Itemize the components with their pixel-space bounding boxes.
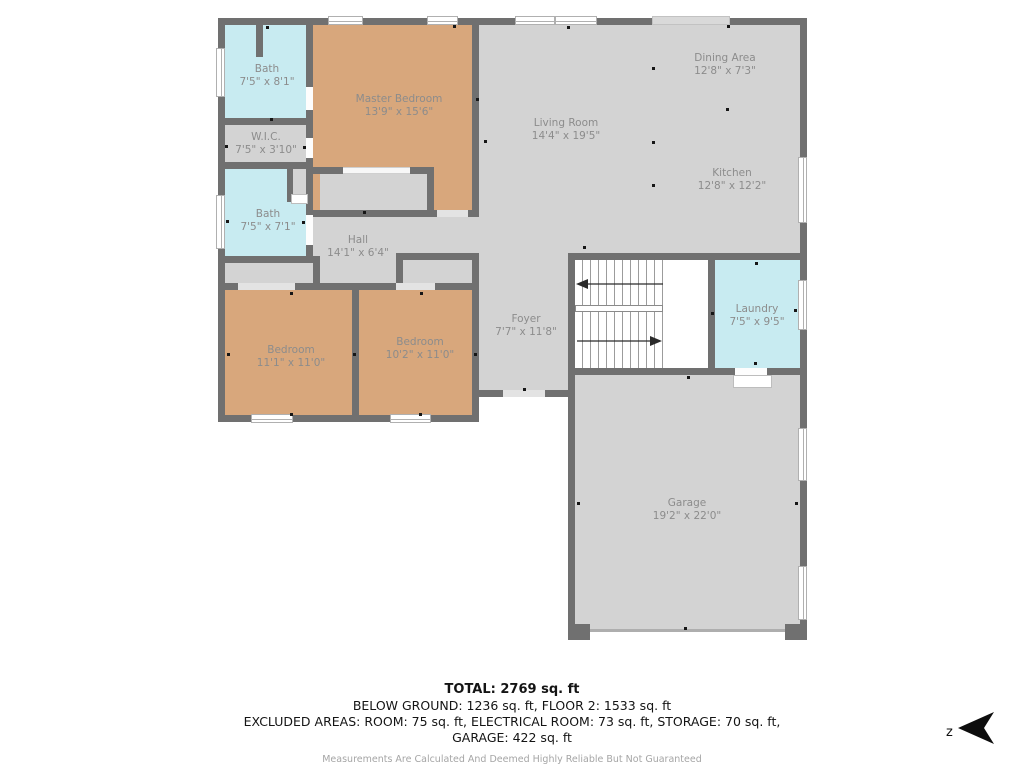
disclaimer-text: Measurements Are Calculated And Deemed H… — [0, 754, 1024, 765]
marker-dot — [363, 211, 366, 214]
wall-bedrooms-top-b — [295, 283, 396, 290]
wall-bath1-right-a — [306, 18, 313, 87]
room-name: W.I.C. — [235, 131, 297, 144]
window-laundry — [798, 280, 807, 330]
room-name: Kitchen — [698, 167, 766, 180]
marker-dot — [290, 292, 293, 295]
bedroom1-door-threshold — [238, 283, 295, 290]
master-closet-floor — [320, 174, 427, 210]
marker-dot — [711, 312, 714, 315]
room-name: Master Bedroom — [356, 93, 443, 106]
room-dims: 7'7" x 11'8" — [495, 326, 557, 339]
window-garage-2 — [798, 566, 807, 620]
wall-bath1-stub — [256, 25, 263, 57]
window-bedroom2 — [390, 414, 431, 423]
garage-area-text: GARAGE: 422 sq. ft — [0, 730, 1024, 745]
window-living-double — [515, 16, 597, 25]
window-master-2 — [427, 16, 458, 25]
marker-dot — [227, 353, 230, 356]
bath2-door-gap — [306, 215, 313, 245]
room-dims: 7'5" x 7'1" — [240, 221, 295, 234]
compass: z — [946, 710, 996, 746]
marker-dot — [794, 309, 797, 312]
room-name: Laundry — [729, 303, 784, 316]
window-bath2 — [216, 195, 225, 249]
wall-foyer-bottom-b — [545, 390, 575, 397]
marker-dot — [225, 145, 228, 148]
marker-dot — [583, 246, 586, 249]
marker-dot — [652, 184, 655, 187]
north-arrow-icon — [956, 710, 996, 746]
window-dining-band — [652, 16, 730, 25]
room-label-bedroom-1: Bedroom 11'1" x 11'0" — [257, 344, 325, 370]
room-label-bedroom-2: Bedroom 10'2" x 11'0" — [386, 336, 454, 362]
marker-dot — [652, 67, 655, 70]
front-door-threshold — [503, 390, 545, 397]
marker-dot — [419, 413, 422, 416]
total-area-text: TOTAL: 2769 sq. ft — [0, 682, 1024, 697]
wall-wing-right-a — [472, 18, 479, 217]
master-door-threshold — [437, 210, 468, 217]
room-dims: 19'2" x 22'0" — [653, 510, 721, 523]
bath2-recess-door — [291, 194, 308, 204]
room-dims: 14'4" x 19'5" — [532, 130, 600, 143]
wall-foyer-bottom-a — [479, 390, 503, 397]
room-name: Dining Area — [694, 52, 756, 65]
marker-dot — [727, 25, 730, 28]
wall-garage-top-b — [767, 368, 807, 375]
marker-dot — [270, 118, 273, 121]
wall-wing-right-b — [472, 253, 479, 422]
marker-dot — [476, 98, 479, 101]
room-label-kitchen: Kitchen 12'8" x 12'2" — [698, 167, 766, 193]
room-label-master-bedroom: Master Bedroom 13'9" x 15'6" — [356, 93, 443, 119]
room-label-foyer: Foyer 7'7" x 11'8" — [495, 313, 557, 339]
room-label-living-room: Living Room 14'4" x 19'5" — [532, 117, 600, 143]
marker-dot — [652, 141, 655, 144]
room-label-laundry: Laundry 7'5" x 9'5" — [729, 303, 784, 329]
room-name: Bedroom — [386, 336, 454, 349]
room-name: Hall — [327, 234, 389, 247]
wall-master-bottom-a — [313, 210, 437, 217]
marker-dot — [420, 292, 423, 295]
room-label-bath-2: Bath 7'5" x 7'1" — [240, 208, 295, 234]
wall-bedrooms-top-a — [218, 283, 238, 290]
window-bath1 — [216, 48, 225, 97]
compass-label: z — [946, 725, 953, 740]
wall-wic-bottom — [218, 162, 313, 169]
marker-dot — [754, 362, 757, 365]
marker-dot — [484, 140, 487, 143]
marker-dot — [303, 146, 306, 149]
floor-areas-text: BELOW GROUND: 1236 sq. ft, FLOOR 2: 1533… — [0, 698, 1024, 713]
room-dims: 10'2" x 11'0" — [386, 349, 454, 362]
room-label-wic: W.I.C. 7'5" x 3'10" — [235, 131, 297, 157]
room-name: Bedroom — [257, 344, 325, 357]
room-dims: 12'8" x 7'3" — [694, 65, 756, 78]
room-dims: 14'1" x 6'4" — [327, 247, 389, 260]
wall-garage-corner-right — [785, 624, 807, 640]
garage-door-sill — [590, 629, 785, 632]
marker-dot — [302, 221, 305, 224]
master-closet-opening — [343, 167, 410, 174]
laundry-door-gap — [735, 368, 767, 375]
bedroom2-door-threshold — [396, 283, 435, 290]
room-name: Bath — [239, 63, 294, 76]
wall-master-closet-right — [427, 167, 434, 217]
window-kitchen — [798, 157, 807, 223]
wall-wic-right-a — [306, 125, 313, 138]
room-label-dining-area: Dining Area 12'8" x 7'3" — [694, 52, 756, 78]
stair-direction-arrows — [573, 256, 713, 372]
room-name: Bath — [240, 208, 295, 221]
room-name: Foyer — [495, 313, 557, 326]
room-dims: 7'5" x 9'5" — [729, 316, 784, 329]
wall-bath2-right-a — [306, 169, 313, 215]
floor-plan-page: Bath 7'5" x 8'1" Master Bedroom 13'9" x … — [0, 0, 1024, 768]
window-garage-1 — [798, 428, 807, 481]
marker-dot — [523, 388, 526, 391]
marker-dot — [226, 220, 229, 223]
laundry-door-leaf — [733, 375, 772, 388]
room-dims: 7'5" x 8'1" — [239, 76, 294, 89]
wall-bath1-bottom — [218, 118, 313, 125]
marker-dot — [577, 502, 580, 505]
room-label-bath-1: Bath 7'5" x 8'1" — [239, 63, 294, 89]
room-label-hall: Hall 14'1" x 6'4" — [327, 234, 389, 260]
room-dims: 11'1" x 11'0" — [257, 357, 325, 370]
room-name: Garage — [653, 497, 721, 510]
marker-dot — [795, 502, 798, 505]
marker-dot — [266, 26, 269, 29]
marker-dot — [453, 25, 456, 28]
marker-dot — [567, 26, 570, 29]
excluded-areas-text: EXCLUDED AREAS: ROOM: 75 sq. ft, ELECTRI… — [0, 714, 1024, 729]
wall-master-closet-top-a — [313, 167, 343, 174]
marker-dot — [684, 627, 687, 630]
bath1-door-gap — [306, 87, 313, 110]
wall-garage-corner-left — [568, 624, 590, 640]
marker-dot — [474, 353, 477, 356]
window-master-1 — [328, 16, 363, 25]
marker-dot — [290, 413, 293, 416]
marker-dot — [353, 353, 356, 356]
wall-bath2-bottom — [218, 256, 320, 263]
room-label-garage: Garage 19'2" x 22'0" — [653, 497, 721, 523]
room-dims: 7'5" x 3'10" — [235, 144, 297, 157]
wall-bedroom2-closet-top — [396, 253, 479, 260]
window-living-mullion — [554, 16, 556, 25]
room-dims: 12'8" x 12'2" — [698, 180, 766, 193]
room-name: Living Room — [532, 117, 600, 130]
wic-door-gap — [306, 138, 313, 158]
room-dims: 13'9" x 15'6" — [356, 106, 443, 119]
marker-dot — [726, 108, 729, 111]
wall-bedroom2-closet-left — [396, 253, 403, 283]
window-bedroom1 — [251, 414, 293, 423]
hall-foyer-opening — [472, 217, 479, 253]
marker-dot — [687, 376, 690, 379]
area-summary: TOTAL: 2769 sq. ft BELOW GROUND: 1236 sq… — [0, 682, 1024, 765]
marker-dot — [755, 262, 758, 265]
